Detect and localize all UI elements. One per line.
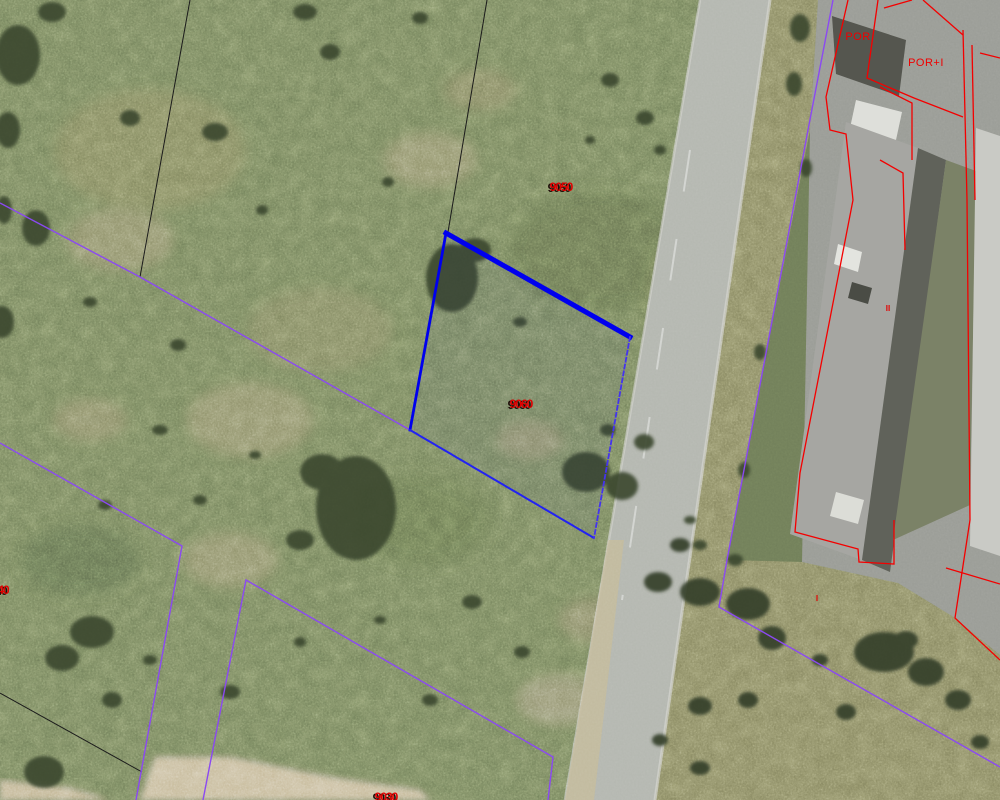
cadastral-map-viewport[interactable]: 90509050906090609040904090309030PORPOR+I…: [0, 0, 1000, 800]
building-use-por: POR: [845, 31, 870, 43]
building-floors-i: I: [816, 594, 818, 603]
parcel-number-9050: 9050: [550, 180, 574, 194]
building-use-por-i: POR+I: [908, 57, 944, 69]
parcel-number-9040: 9040: [0, 583, 10, 597]
parcel-number-9030: 9030: [375, 790, 399, 800]
parcel-number-9060: 9060: [510, 397, 534, 411]
building-floors-ii: II: [886, 304, 890, 313]
map-canvas: 90509050906090609040904090309030PORPOR+I…: [0, 0, 1000, 800]
